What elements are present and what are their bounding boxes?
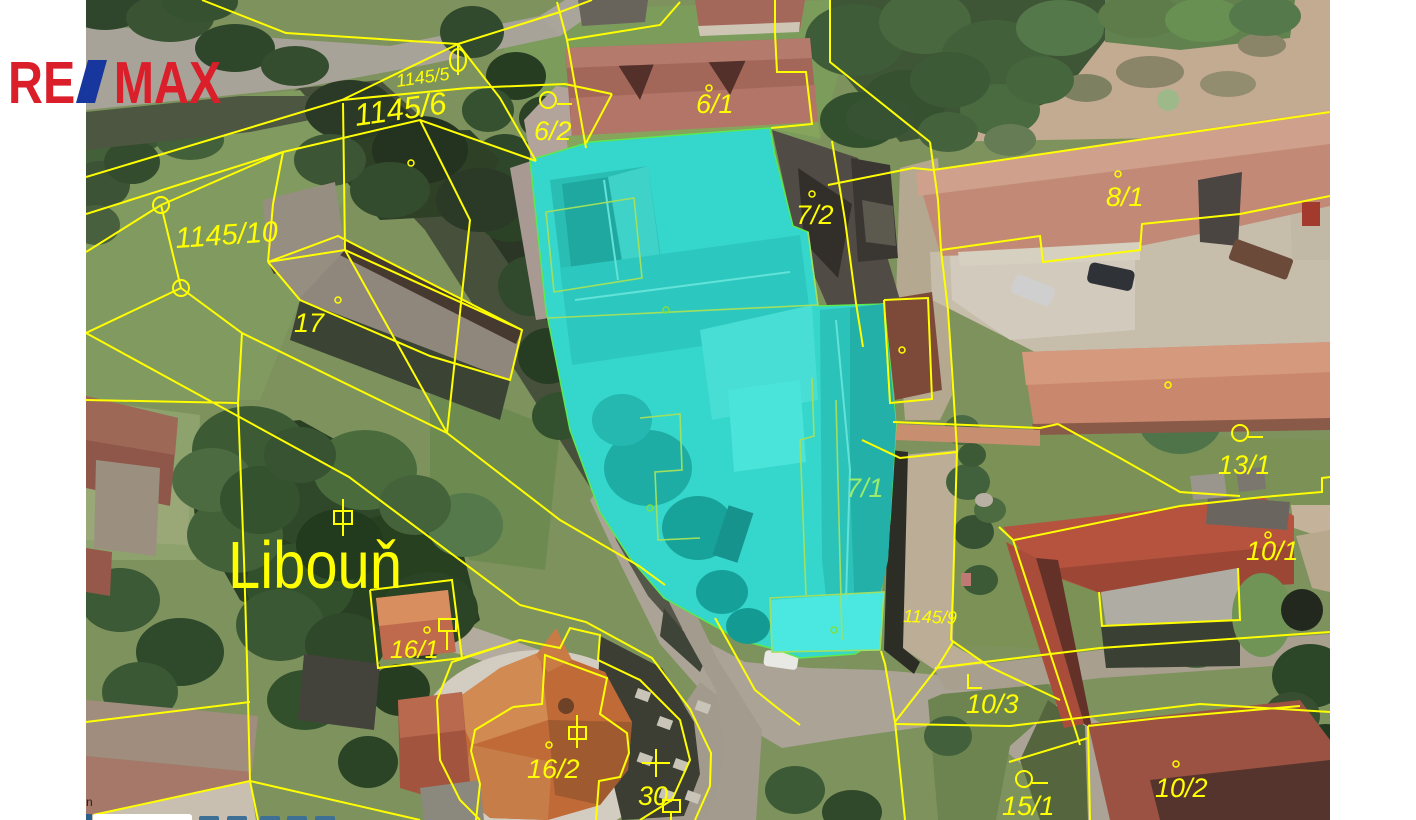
svg-text:15/1: 15/1 <box>1002 791 1055 820</box>
svg-text:7/1: 7/1 <box>846 473 884 503</box>
svg-text:6/2: 6/2 <box>534 116 572 146</box>
svg-text:6/1: 6/1 <box>696 89 734 119</box>
svg-text:8/1: 8/1 <box>1106 182 1144 212</box>
svg-text:10/2: 10/2 <box>1155 773 1208 803</box>
svg-text:n: n <box>86 795 93 809</box>
svg-text:30: 30 <box>638 781 668 811</box>
svg-text:Libouň: Libouň <box>228 528 402 603</box>
svg-text:17: 17 <box>294 308 325 338</box>
svg-text:10/3: 10/3 <box>966 689 1019 719</box>
svg-text:16/2: 16/2 <box>527 754 580 784</box>
svg-text:16/1: 16/1 <box>390 636 439 664</box>
svg-text:13/1: 13/1 <box>1218 450 1271 480</box>
svg-text:1145/9: 1145/9 <box>903 606 957 628</box>
svg-text:7/2: 7/2 <box>796 200 834 230</box>
svg-text:10/1: 10/1 <box>1246 536 1299 566</box>
